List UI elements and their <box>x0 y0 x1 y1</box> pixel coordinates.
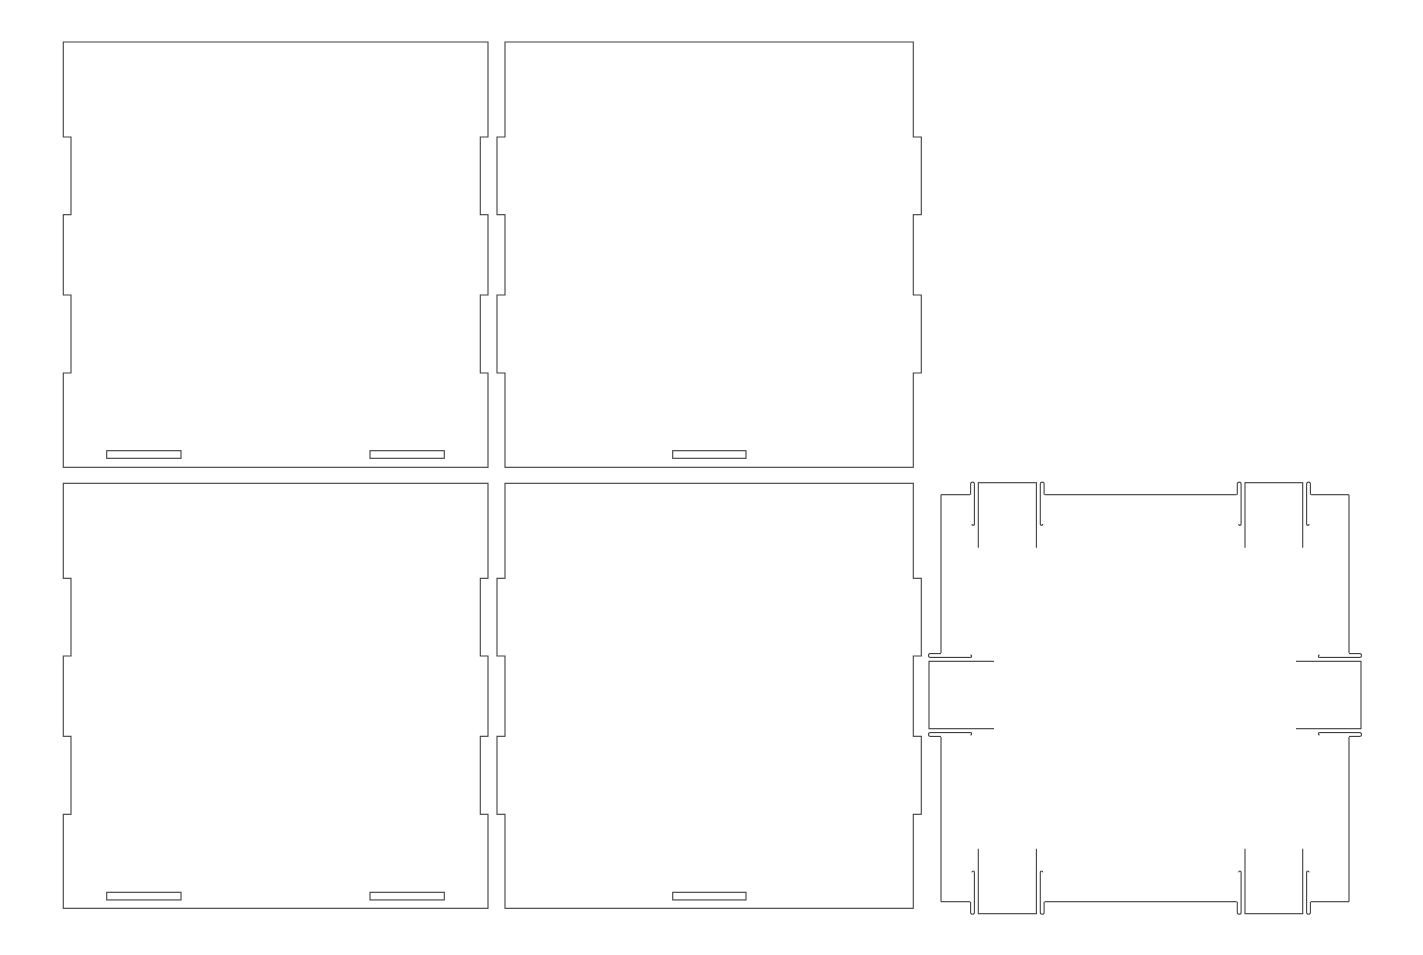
lid-clip-2-hook-left <box>1237 482 1241 525</box>
lid-clip-3-hook-left <box>971 871 975 914</box>
box-template-drawing <box>0 0 1423 955</box>
lid-clip-3-tab <box>978 849 1036 914</box>
panel-outline-wall-bottom-left <box>63 483 488 908</box>
clip-slot-wall-bottom-middle-1 <box>673 892 746 900</box>
lid-clip-1-hook-left <box>971 482 975 525</box>
lid-clip-5-hook-right <box>929 733 972 737</box>
lid-clip-6-tab <box>1296 661 1361 728</box>
lid-clip-1-hook-right <box>1040 482 1044 525</box>
panel-outline-lid-click-on <box>941 495 1349 902</box>
lid-clip-4-tab <box>1245 849 1303 914</box>
lid-clip-4-hook-left <box>1237 871 1241 914</box>
clip-slot-wall-top-middle-1 <box>673 451 746 459</box>
lid-clip-1-tab <box>978 483 1036 548</box>
panel-outline-wall-top-middle <box>497 42 921 467</box>
clip-slot-wall-top-left-2 <box>370 451 444 459</box>
panel-outline-wall-top-left <box>63 42 488 467</box>
lid-clip-6-hook-right <box>1318 733 1361 737</box>
panel-outline-wall-bottom-middle <box>497 483 921 908</box>
lid-clip-2-tab <box>1245 483 1303 548</box>
laser-cut-template-page <box>0 0 1423 955</box>
lid-clip-6-hook-left <box>1318 654 1361 658</box>
clip-slot-wall-bottom-left-2 <box>370 892 444 900</box>
clip-slot-wall-bottom-left-1 <box>107 892 181 900</box>
lid-clip-5-tab <box>929 661 994 728</box>
lid-clip-3-hook-right <box>1040 871 1044 914</box>
lid-clip-4-hook-right <box>1307 871 1311 914</box>
lid-clip-5-hook-left <box>929 654 972 658</box>
lid-clip-2-hook-right <box>1307 482 1311 525</box>
clip-slot-wall-top-left-1 <box>107 451 181 459</box>
